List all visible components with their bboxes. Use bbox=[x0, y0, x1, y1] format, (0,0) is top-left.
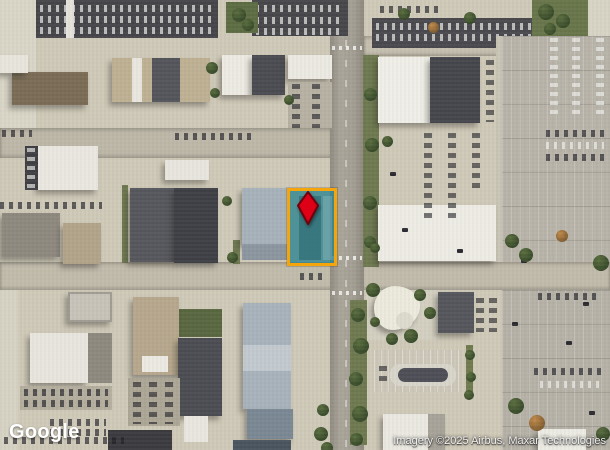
parcel-building-shading bbox=[323, 196, 332, 260]
parking-lot-dark bbox=[252, 0, 348, 36]
building-roof-section bbox=[242, 244, 288, 260]
building bbox=[30, 333, 88, 383]
car-column bbox=[424, 133, 432, 221]
building-roof-section bbox=[88, 333, 112, 383]
car-column bbox=[476, 298, 484, 332]
car-row bbox=[24, 389, 108, 396]
tree bbox=[414, 289, 426, 301]
tree bbox=[424, 307, 436, 319]
building bbox=[38, 146, 98, 190]
lawn bbox=[178, 309, 222, 337]
car-row bbox=[24, 400, 108, 407]
car-row bbox=[256, 28, 344, 35]
building bbox=[430, 57, 480, 123]
car-row bbox=[546, 130, 604, 137]
car-column bbox=[550, 38, 558, 116]
tree bbox=[353, 338, 369, 354]
car-column bbox=[472, 133, 480, 189]
tree bbox=[284, 95, 294, 105]
property-marker-icon[interactable] bbox=[296, 191, 320, 225]
crosswalk bbox=[332, 291, 362, 295]
building bbox=[0, 55, 28, 73]
building bbox=[63, 223, 101, 264]
imagery-attribution: Imagery ©2025 Airbus, Maxar Technologies bbox=[393, 435, 606, 447]
building bbox=[243, 303, 291, 409]
car-row bbox=[256, 5, 344, 12]
car-row bbox=[546, 154, 604, 161]
tree bbox=[365, 138, 379, 152]
tree bbox=[519, 248, 533, 262]
tree bbox=[349, 372, 363, 386]
tree bbox=[466, 372, 476, 382]
tree bbox=[382, 136, 393, 147]
tree bbox=[210, 88, 220, 98]
car-column bbox=[149, 382, 157, 424]
walkway bbox=[66, 0, 74, 38]
car-column bbox=[572, 38, 580, 116]
car-row bbox=[546, 142, 604, 149]
building bbox=[2, 213, 60, 257]
concrete-patch bbox=[588, 0, 610, 40]
car-column bbox=[486, 60, 494, 122]
car-column bbox=[312, 84, 320, 128]
car-row bbox=[534, 368, 602, 375]
tree bbox=[364, 88, 377, 101]
tree bbox=[464, 390, 474, 400]
tree bbox=[428, 22, 439, 33]
building bbox=[222, 55, 252, 95]
car-column bbox=[489, 298, 497, 332]
tree bbox=[351, 308, 365, 322]
curb-strip bbox=[496, 36, 502, 262]
tree bbox=[404, 329, 418, 343]
car-column bbox=[133, 382, 141, 424]
building bbox=[68, 292, 112, 322]
car bbox=[566, 341, 572, 345]
building bbox=[242, 188, 288, 244]
building-roof-section bbox=[152, 58, 180, 102]
building-roof-section bbox=[132, 58, 142, 102]
car-column bbox=[165, 382, 173, 424]
tree bbox=[508, 398, 524, 414]
tree bbox=[464, 12, 476, 24]
tree bbox=[317, 404, 329, 416]
tree bbox=[386, 333, 398, 345]
parking-lot-dark bbox=[36, 0, 218, 38]
building bbox=[165, 160, 209, 180]
car-row bbox=[175, 133, 255, 140]
car-row bbox=[2, 130, 32, 137]
car bbox=[390, 172, 396, 176]
tree bbox=[206, 62, 218, 74]
car-row bbox=[256, 17, 344, 24]
building bbox=[288, 55, 332, 79]
building bbox=[130, 188, 174, 262]
tree bbox=[398, 8, 410, 20]
tree bbox=[314, 427, 328, 441]
car-column bbox=[448, 133, 456, 221]
car-column bbox=[27, 148, 35, 188]
tree bbox=[529, 415, 545, 431]
tree bbox=[321, 442, 333, 450]
church-dome bbox=[396, 312, 413, 329]
building bbox=[247, 409, 293, 439]
car bbox=[583, 302, 589, 306]
car bbox=[589, 411, 595, 415]
car bbox=[402, 228, 408, 232]
tree bbox=[556, 230, 568, 242]
tree bbox=[363, 196, 377, 210]
car-row bbox=[376, 23, 546, 30]
lane-line bbox=[345, 0, 347, 450]
building-annex bbox=[142, 356, 168, 372]
car-row bbox=[540, 381, 600, 388]
car-row bbox=[380, 6, 440, 13]
grass-sliver bbox=[122, 185, 128, 263]
car bbox=[512, 322, 518, 326]
car-row bbox=[538, 293, 600, 300]
tree bbox=[242, 19, 254, 31]
car-column bbox=[596, 38, 604, 116]
car-row bbox=[300, 273, 326, 280]
building bbox=[378, 57, 430, 123]
strip-building bbox=[398, 368, 448, 382]
tree bbox=[465, 350, 475, 360]
map-canvas[interactable]: Google Imagery ©2025 Airbus, Maxar Techn… bbox=[0, 0, 610, 450]
building bbox=[178, 338, 222, 416]
tree bbox=[370, 317, 380, 327]
tree bbox=[350, 433, 363, 446]
tree bbox=[538, 4, 554, 20]
building bbox=[252, 55, 285, 95]
tree bbox=[544, 23, 556, 35]
tree bbox=[370, 243, 380, 253]
building-annex bbox=[184, 416, 208, 442]
tree bbox=[222, 196, 232, 206]
building bbox=[233, 440, 291, 450]
tree bbox=[366, 283, 380, 297]
tree bbox=[505, 234, 519, 248]
building bbox=[438, 292, 474, 333]
car-column bbox=[292, 84, 300, 128]
marker-diamond bbox=[298, 192, 318, 224]
building-roof-section bbox=[243, 345, 291, 371]
tree bbox=[556, 14, 570, 28]
tree bbox=[352, 406, 368, 422]
tree bbox=[227, 252, 238, 263]
building bbox=[12, 72, 88, 105]
car-column bbox=[379, 366, 387, 384]
tree bbox=[593, 255, 609, 271]
car bbox=[457, 249, 463, 253]
google-logo[interactable]: Google bbox=[9, 421, 80, 444]
building bbox=[378, 205, 496, 261]
building bbox=[174, 188, 218, 263]
car-row bbox=[0, 202, 102, 209]
crosswalk bbox=[332, 46, 362, 50]
